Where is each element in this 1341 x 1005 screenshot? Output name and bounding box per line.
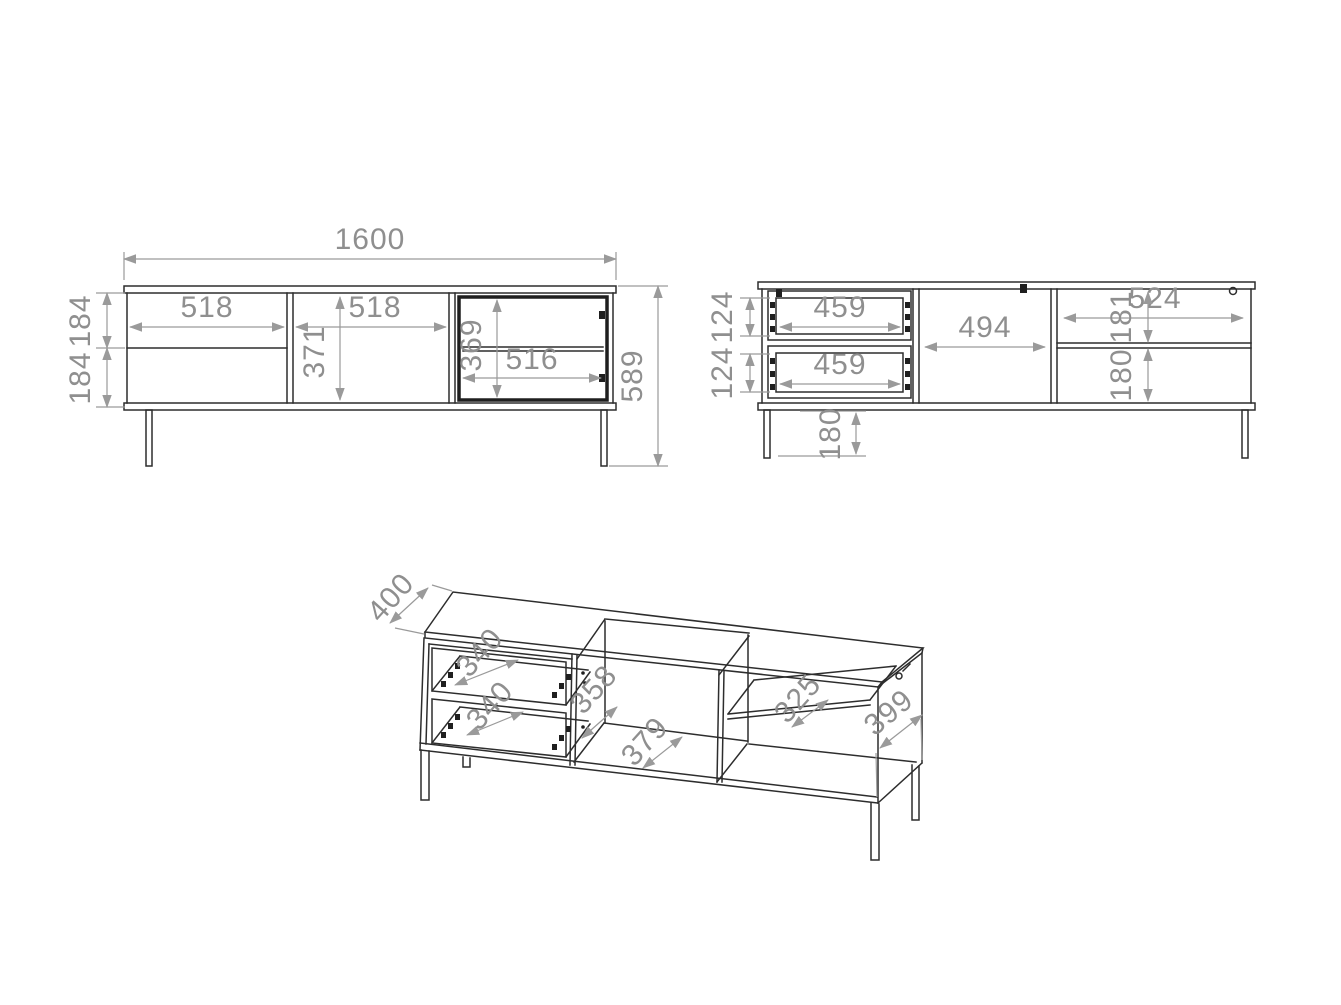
front-right-leg <box>871 803 879 860</box>
drawing-sheet: 1600 184 184 589 518 518 371 369 516 <box>0 0 1341 1005</box>
right-leg <box>601 410 607 466</box>
dimensions-front-open: 459 459 494 524 181 180 124 124 180 <box>706 282 1243 461</box>
dim-middle-section-width: 518 <box>348 291 401 324</box>
dim-glass-door-width: 516 <box>505 343 558 376</box>
dim-right-lower-height: 180 <box>1105 348 1138 401</box>
dim-top-depth: 400 <box>361 567 421 629</box>
front-left-leg <box>421 750 429 800</box>
dim-upper-drawer-height: 124 <box>706 290 739 343</box>
hinge-mark-top <box>599 311 605 319</box>
isometric-view-drawing: 400 340 340 358 379 325 399 <box>360 555 990 885</box>
hinge-mark <box>896 673 902 679</box>
right-shelf <box>1057 343 1251 348</box>
bottom-panel <box>124 403 616 410</box>
left-leg <box>764 410 770 458</box>
dimensions-front-closed: 1600 184 184 589 518 518 371 369 516 <box>64 223 668 466</box>
dim-upper-drawer-depth: 340 <box>450 622 510 684</box>
dim-left-section-width: 518 <box>180 291 233 324</box>
front-view-open-drawing: 459 459 494 524 181 180 124 124 180 <box>700 255 1300 485</box>
dim-lower-drawer-height: 184 <box>64 351 97 404</box>
dim-middle-section-width: 494 <box>958 311 1011 344</box>
back-right-leg <box>912 765 919 820</box>
dim-middle-section-height: 371 <box>298 325 331 378</box>
fitting-mark-left <box>776 289 782 297</box>
fitting-mark-middle <box>1020 284 1027 293</box>
dim-upper-drawer-height: 184 <box>64 294 97 347</box>
dim-middle-inner-width: 379 <box>615 711 675 773</box>
dim-right-upper-height: 181 <box>1105 290 1138 343</box>
drawer-slides <box>441 663 587 750</box>
dim-upper-drawer-width: 459 <box>813 291 866 324</box>
middle-back-edges <box>605 621 748 742</box>
left-side-edge <box>420 638 429 750</box>
dim-leg-height: 180 <box>814 407 847 460</box>
front-view-closed-drawing: 1600 184 184 589 518 518 371 369 516 <box>60 225 690 485</box>
left-leg <box>146 410 152 466</box>
dim-overall-width: 1600 <box>335 223 406 256</box>
right-floor-back-edge <box>749 744 916 762</box>
right-leg <box>1242 410 1248 458</box>
dim-lower-drawer-depth: 340 <box>460 675 520 737</box>
dim-side-depth: 399 <box>858 683 920 742</box>
section-dividers <box>913 289 1057 403</box>
dim-overall-height: 589 <box>616 349 649 402</box>
dim-glass-door-height: 369 <box>455 318 488 371</box>
dim-lower-drawer-width: 459 <box>813 348 866 381</box>
back-left-leg <box>463 757 470 767</box>
dim-lower-drawer-height: 124 <box>706 346 739 399</box>
